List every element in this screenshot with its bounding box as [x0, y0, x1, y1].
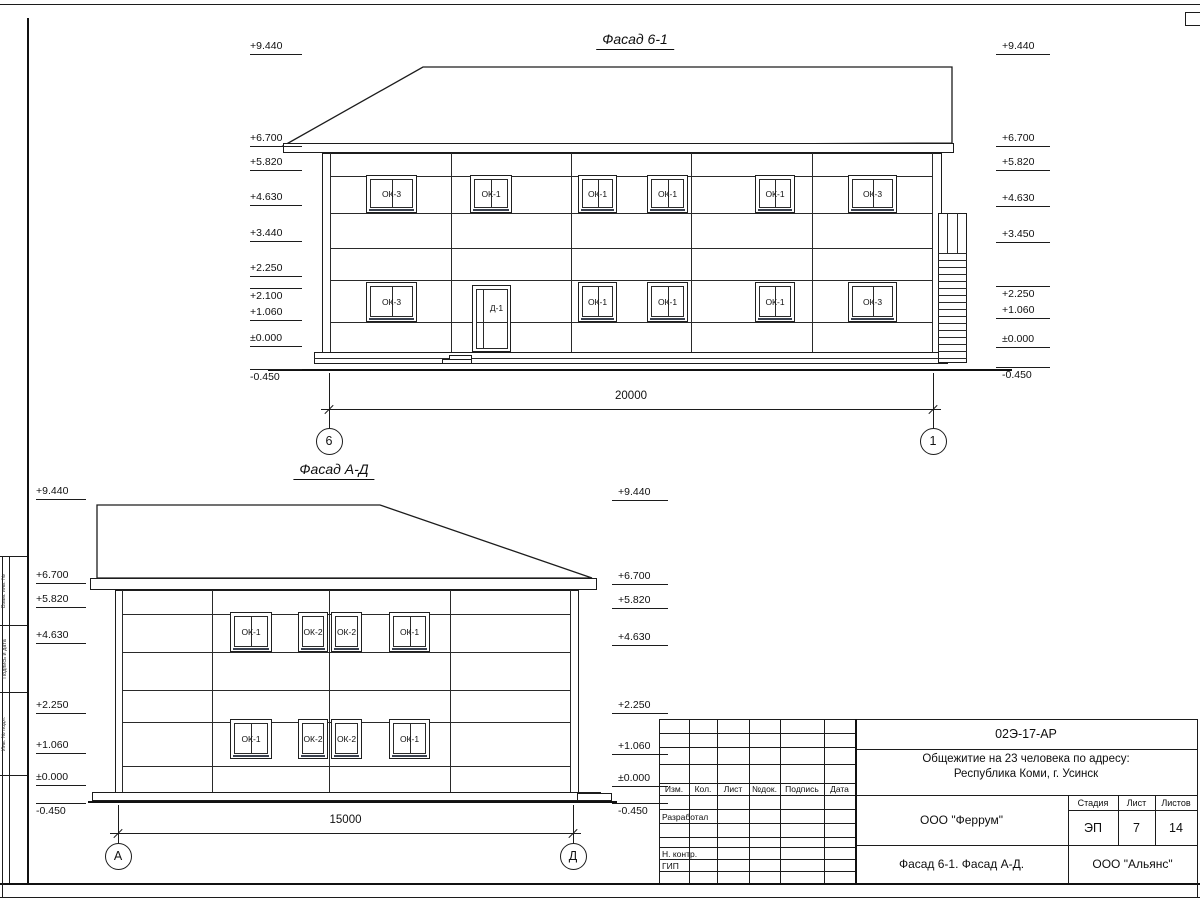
window-label: ОК-1	[390, 627, 429, 637]
facade1-elev-label: +3.440	[250, 227, 296, 239]
window-sill	[392, 648, 427, 651]
facade1-elev-shelf	[250, 369, 302, 370]
window-sill	[758, 209, 792, 212]
sheets-value: 14	[1155, 810, 1197, 845]
window-label: ОК-1	[648, 297, 687, 307]
window-sill	[581, 209, 614, 212]
sheets-label: Листов	[1155, 795, 1197, 810]
window: ОК-2	[298, 719, 328, 759]
window: ОК-1	[230, 612, 272, 652]
facade2-elev-label: +4.630	[36, 629, 80, 641]
window: ОК-3	[366, 282, 417, 322]
window-label: ОК-3	[367, 189, 416, 199]
elevation-arrow-icon	[996, 170, 1010, 182]
window-label: ОК-1	[471, 189, 511, 199]
facade1-dim-line	[321, 409, 941, 410]
row-gip: ГИП	[662, 861, 679, 871]
axis-bubble: А	[105, 843, 132, 870]
window-sill	[233, 755, 269, 758]
facade1-dim-value: 20000	[615, 390, 647, 402]
window: ОК-1	[578, 282, 617, 322]
elevation-arrow-icon	[996, 242, 1010, 254]
window-label: ОК-1	[756, 189, 794, 199]
facade2-elev-label: +2.250	[36, 699, 80, 711]
facade1-elev-label: +4.630	[1002, 192, 1050, 204]
facade2-elev-label: +5.820	[618, 594, 668, 606]
window: ОК-1	[389, 719, 430, 759]
window: ОК-1	[755, 282, 795, 322]
facade2-elev-label: +2.250	[618, 699, 668, 711]
facade2-joint-v3	[450, 590, 451, 793]
window-sill	[334, 755, 359, 758]
window-label: ОК-1	[231, 627, 271, 637]
window-sill	[581, 318, 614, 321]
window: ОК-3	[848, 282, 897, 322]
facade2-title: Фасад А-Д	[293, 461, 374, 480]
facade1-elev-label: +3.450	[1002, 228, 1050, 240]
facade2-joint-v1	[212, 590, 213, 793]
window: ОК-1	[578, 175, 617, 213]
elevation-arrow-icon	[287, 241, 301, 253]
facade2-elev-shelf	[36, 803, 86, 804]
facade2-elev-label: +5.820	[36, 593, 80, 605]
facade2-elev-label: +9.440	[618, 486, 668, 498]
window-sill	[369, 209, 414, 212]
facade2-joint-h5	[122, 766, 570, 767]
elevation-arrow-icon	[612, 754, 626, 766]
elevation-arrow-icon	[71, 499, 85, 511]
elevation-arrow-icon	[71, 791, 85, 803]
window-label: ОК-3	[849, 297, 896, 307]
axis-bubble: Д	[560, 843, 587, 870]
sheet-caption: Фасад 6-1. Фасад А-Д.	[855, 845, 1068, 883]
facade1-elev-label: +6.700	[250, 132, 296, 144]
row-razrabotal: Разработал	[662, 812, 708, 822]
facade2-fascia	[90, 578, 597, 590]
facade1-elev-shelf	[250, 288, 302, 289]
col-data: Дата	[824, 783, 855, 795]
elevation-arrow-icon	[71, 753, 85, 765]
elevation-arrow-icon	[287, 205, 301, 217]
elevation-arrow-icon	[612, 713, 626, 725]
window-label: ОК-3	[849, 189, 896, 199]
facade2-joint-h3	[122, 690, 570, 691]
facade2-joint-v2	[329, 590, 330, 793]
elevation-arrow-icon	[612, 645, 626, 657]
elevation-arrow-icon	[287, 357, 301, 369]
window: ОК-1	[389, 612, 430, 652]
elevation-arrow-icon	[287, 320, 301, 332]
col-izm: Изм.	[659, 783, 689, 795]
elevation-arrow-icon	[996, 274, 1010, 286]
window-sill	[334, 648, 359, 651]
row-nkontr: Н. контр.	[662, 849, 697, 859]
elevation-arrow-icon	[996, 355, 1010, 367]
elevation-arrow-icon	[612, 500, 626, 512]
facade1-title: Фасад 6-1	[596, 31, 674, 50]
facade2-joint-h2	[122, 652, 570, 653]
window-sill	[233, 648, 269, 651]
window: ОК-2	[331, 719, 362, 759]
facade1-elev-label: ±0.000	[1002, 333, 1050, 345]
window: ОК-1	[647, 175, 688, 213]
facade1-elev-label: +2.250	[250, 262, 296, 274]
window-sill	[369, 318, 414, 321]
window-label: ОК-1	[579, 297, 616, 307]
window: ОК-2	[331, 612, 362, 652]
facade1-elev-label: +9.440	[250, 40, 296, 52]
window-label: ОК-1	[390, 734, 429, 744]
facade1-elev-label: -0.450	[1002, 369, 1050, 381]
window-label: ОК-2	[332, 734, 361, 744]
window: ОК-3	[848, 175, 897, 213]
facade2-elev-label: +9.440	[36, 485, 80, 497]
facade2-dim-line	[110, 833, 581, 834]
facade1-elev-label: +5.820	[1002, 156, 1050, 168]
facade2-side-step	[577, 793, 612, 801]
elevation-arrow-icon	[612, 608, 626, 620]
object-name-line2: Республика Коми, г. Усинск	[855, 768, 1197, 780]
elevation-arrow-icon	[996, 206, 1010, 218]
stage-value: ЭП	[1068, 810, 1118, 845]
elevation-arrow-icon	[287, 54, 301, 66]
elevation-arrow-icon	[612, 791, 626, 803]
facade1-elev-shelf	[996, 367, 1050, 368]
window-sill	[473, 209, 509, 212]
window: ОК-3	[366, 175, 417, 213]
window-sill	[851, 209, 894, 212]
facade2-elev-label: -0.450	[618, 805, 668, 817]
facade2-elev-label: +1.060	[36, 739, 80, 751]
window: ОК-1	[647, 282, 688, 322]
window-label: ОК-1	[756, 297, 794, 307]
door: Д-1	[472, 285, 511, 352]
col-podpis: Подпись	[780, 783, 824, 795]
elevation-arrow-icon	[71, 607, 85, 619]
elevation-arrow-icon	[996, 318, 1010, 330]
facade1-dim-ext-left	[329, 373, 330, 428]
window-label: ОК-1	[648, 189, 687, 199]
col-list: Лист	[717, 783, 749, 795]
window-sill	[392, 755, 427, 758]
drawing-sheet: Взам. инв. № Подпись и дата Инв. № подл.	[0, 0, 1200, 900]
facade1-elev-label: +2.100	[250, 290, 296, 302]
facade2-pilaster-right	[570, 590, 571, 793]
elevation-arrow-icon	[287, 170, 301, 182]
facade1-dim-ext-right	[933, 373, 934, 428]
facade2-elev-label: -0.450	[36, 805, 80, 817]
window-label: ОК-2	[332, 627, 361, 637]
facade2-elev-label: ±0.000	[36, 771, 80, 783]
axis-bubble: 6	[316, 428, 343, 455]
window-sill	[851, 318, 894, 321]
facade1-elev-label: ±0.000	[250, 332, 296, 344]
facade2-plinth	[92, 792, 601, 801]
col-ndok: №док.	[749, 783, 780, 795]
doc-code: 02Э-17-АР	[855, 721, 1197, 747]
window-sill	[301, 755, 325, 758]
client-org: ООО "Альянс"	[1068, 845, 1197, 883]
window-sill	[758, 318, 792, 321]
window-label: ОК-2	[299, 627, 327, 637]
facade2-dim-ext-left	[118, 805, 119, 843]
door-mullion	[483, 289, 484, 349]
facade1-elev-label: +2.250	[1002, 288, 1050, 300]
facade1-elev-shelf	[996, 286, 1050, 287]
facade2-elev-label: +4.630	[618, 631, 668, 643]
sheet-label: Лист	[1118, 795, 1155, 810]
facade1-elev-label: +6.700	[1002, 132, 1050, 144]
facade1-elev-label: +5.820	[250, 156, 296, 168]
facade1-elev-label: +9.440	[1002, 40, 1050, 52]
facade1-elev-label: -0.450	[250, 371, 296, 383]
door-rail	[476, 322, 508, 323]
col-kol: Кол.	[689, 783, 717, 795]
elevation-arrow-icon	[996, 54, 1010, 66]
window-label: ОК-1	[579, 189, 616, 199]
window-sill	[650, 318, 685, 321]
window-sill	[650, 209, 685, 212]
facade1-elev-label: +1.060	[250, 306, 296, 318]
facade2-pilaster-left	[122, 590, 123, 793]
facade2-dim-ext-right	[573, 805, 574, 843]
facade2-dim-value: 15000	[330, 814, 362, 826]
elevation-arrow-icon	[71, 643, 85, 655]
window: ОК-2	[298, 612, 328, 652]
window-label: ОК-2	[299, 734, 327, 744]
window: ОК-1	[470, 175, 512, 213]
elevation-arrow-icon	[71, 713, 85, 725]
window: ОК-1	[755, 175, 795, 213]
elevation-arrow-icon	[287, 276, 301, 288]
facade2-ground-line	[88, 801, 617, 803]
window-label: ОК-3	[367, 297, 416, 307]
window-sill	[301, 648, 325, 651]
facade1-elev-label: +1.060	[1002, 304, 1050, 316]
facade2-elev-label: +6.700	[36, 569, 80, 581]
facade2-elev-label: +1.060	[618, 740, 668, 752]
sheet-value: 7	[1118, 810, 1155, 845]
window: ОК-1	[230, 719, 272, 759]
facade2-elev-label: +6.700	[618, 570, 668, 582]
stage-label: Стадия	[1068, 795, 1118, 810]
door-label: Д-1	[483, 303, 510, 313]
facade1-elev-label: +4.630	[250, 191, 296, 203]
window-label: ОК-1	[231, 734, 271, 744]
object-name-line1: Общежитие на 23 человека по адресу:	[855, 753, 1197, 765]
axis-bubble: 1	[920, 428, 947, 455]
door-inner-frame	[476, 289, 508, 349]
designer-org: ООО "Феррум"	[855, 795, 1068, 845]
